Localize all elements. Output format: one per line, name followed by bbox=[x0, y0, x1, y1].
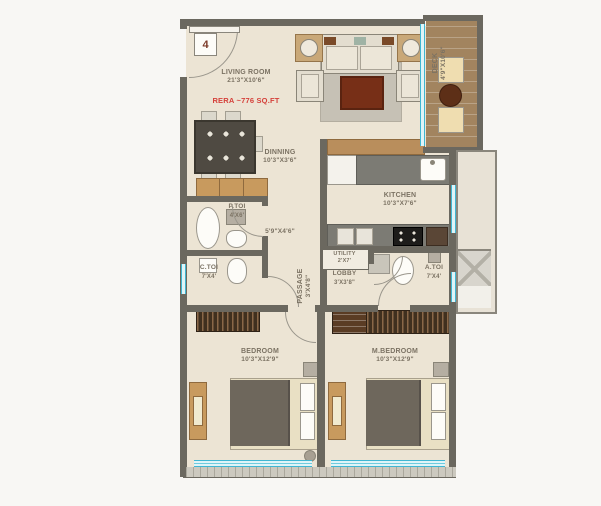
kitchen-appliance bbox=[426, 227, 448, 246]
area-note: RERA ~776 SQ.FT bbox=[198, 96, 294, 106]
window-glass bbox=[331, 460, 445, 467]
wall bbox=[262, 236, 268, 278]
passage-dim-note: 5'9"X4'6" bbox=[248, 228, 312, 237]
room-label-ptoi: P.TOI 4'X6' bbox=[214, 203, 260, 220]
wardrobe bbox=[196, 310, 260, 332]
floor-plan: 4 LIVING ROOM 21'3"X10'6" RERA ~776 SQ.F… bbox=[0, 0, 601, 506]
window-glass bbox=[451, 185, 456, 233]
mirror bbox=[193, 396, 203, 426]
shaft-open bbox=[458, 286, 491, 308]
shower-head-icon bbox=[428, 252, 441, 263]
wall bbox=[262, 196, 268, 206]
room-label-utility: UTILITY 2'X7' bbox=[322, 251, 367, 265]
wall bbox=[423, 15, 483, 21]
kitchen-cabinet bbox=[327, 155, 358, 185]
wardrobe bbox=[366, 310, 454, 334]
room-label-lobby: LOBBY 3'X3'8" bbox=[322, 270, 367, 287]
pillow bbox=[431, 412, 446, 440]
pillow bbox=[300, 383, 315, 411]
room-label-dining: DINNING 10'3"X3'6" bbox=[244, 148, 316, 166]
wall bbox=[317, 305, 325, 477]
lamp-icon bbox=[402, 39, 420, 57]
wall bbox=[320, 139, 327, 252]
window-sill bbox=[186, 467, 456, 477]
wall bbox=[183, 19, 425, 26]
sofa-pillow bbox=[382, 37, 394, 45]
room-label-atoi: A.TOI 7'X4' bbox=[414, 264, 454, 281]
wall bbox=[186, 250, 268, 256]
toilet-wc bbox=[226, 230, 247, 248]
armchair-seat bbox=[301, 74, 319, 98]
unit-number-badge: 4 bbox=[194, 33, 217, 56]
room-label-kitchen: KITCHEN 10'3"X7'6" bbox=[350, 191, 450, 209]
stove-icon bbox=[393, 227, 423, 246]
deck-stool bbox=[438, 107, 464, 133]
room-label-living: LIVING ROOM 21'3"X10'6" bbox=[198, 68, 294, 86]
sink-faucet bbox=[430, 160, 435, 165]
toilet-wc bbox=[227, 258, 247, 284]
room-label-ctoi: C.TOI 7'X4' bbox=[188, 264, 230, 281]
sofa-pillow bbox=[324, 37, 336, 45]
pillow bbox=[300, 412, 315, 440]
room-label-deck: DECK 4'9"X10'6" bbox=[431, 33, 449, 93]
wall bbox=[186, 196, 268, 202]
wall bbox=[477, 15, 483, 153]
mirror bbox=[332, 396, 342, 426]
wardrobe-shelf bbox=[332, 310, 367, 334]
window-glass bbox=[194, 460, 312, 467]
wall bbox=[449, 305, 456, 477]
coffee-table bbox=[340, 76, 384, 110]
pillow bbox=[431, 383, 446, 411]
shaft-duct bbox=[458, 249, 491, 288]
sideboard bbox=[196, 178, 268, 197]
sofa-cushion bbox=[326, 46, 358, 70]
counter-item bbox=[356, 228, 373, 245]
armchair-seat bbox=[401, 74, 419, 98]
wall bbox=[180, 19, 187, 29]
room-label-bedroom: BEDROOM 10'3"X12'9" bbox=[220, 347, 300, 365]
door-leaf bbox=[189, 26, 240, 33]
window-glass bbox=[420, 24, 425, 146]
overhead-cabinet bbox=[327, 139, 425, 155]
bed-duvet bbox=[366, 380, 421, 446]
window-glass bbox=[181, 264, 186, 294]
lamp-icon bbox=[300, 39, 318, 57]
room-label-mbedroom: M.BEDROOM 10'3"X12'9" bbox=[352, 347, 438, 365]
sofa-cushion bbox=[360, 46, 392, 70]
bed-duvet bbox=[230, 380, 290, 446]
sofa-pillow bbox=[354, 37, 366, 45]
counter-item bbox=[337, 228, 354, 245]
room-label-passage: PASSAGE 3'X4'8" bbox=[296, 251, 318, 321]
